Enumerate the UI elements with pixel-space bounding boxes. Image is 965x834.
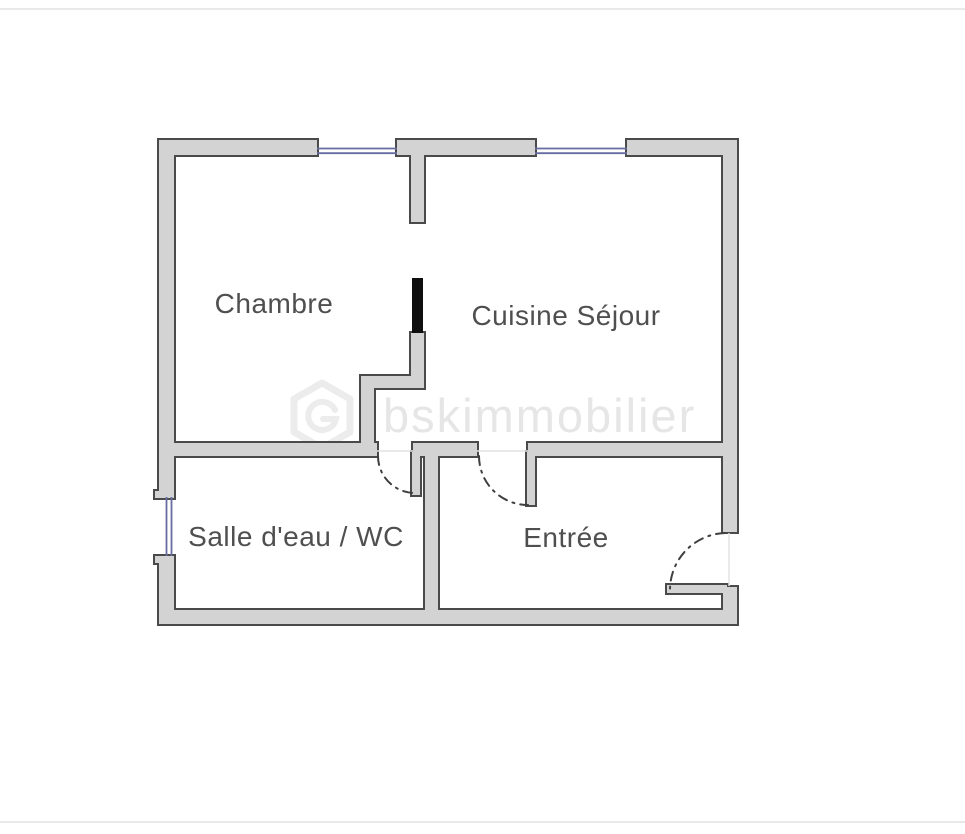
wall-segment xyxy=(159,140,174,497)
wall-segment xyxy=(528,443,723,456)
door-swing-arc xyxy=(670,533,725,590)
wall-segment xyxy=(174,443,377,456)
floor-plan-drawing xyxy=(0,0,965,834)
door-leaf xyxy=(527,452,535,505)
room-label-salle-deau-wc: Salle d'eau / WC xyxy=(188,521,404,553)
door-swing-arc xyxy=(479,456,528,505)
sliding-door-panel xyxy=(412,278,423,333)
room-label-chambre: Chambre xyxy=(215,288,334,320)
wall-segment xyxy=(361,376,424,388)
wall-segment xyxy=(425,456,438,610)
door-leaf xyxy=(412,452,420,495)
wall-segment xyxy=(159,610,737,624)
room-label-cuisine-sejour: Cuisine Séjour xyxy=(471,300,660,332)
wall-segment xyxy=(411,154,424,222)
wall-segment xyxy=(627,140,737,155)
room-label-entree: Entrée xyxy=(523,522,609,554)
wall-segment xyxy=(361,388,374,450)
door-swing-arc xyxy=(378,456,415,493)
wall-segment xyxy=(397,140,535,155)
wall-segment xyxy=(159,140,317,155)
wall-segment xyxy=(413,443,477,456)
window-sill xyxy=(155,556,174,563)
windows-layer xyxy=(167,149,628,557)
window-sill xyxy=(155,491,174,498)
wall-segment xyxy=(411,333,424,382)
floor-plan: bskimmobilier xyxy=(0,0,965,834)
wall-segment xyxy=(723,140,737,532)
door-leaf xyxy=(667,585,727,593)
